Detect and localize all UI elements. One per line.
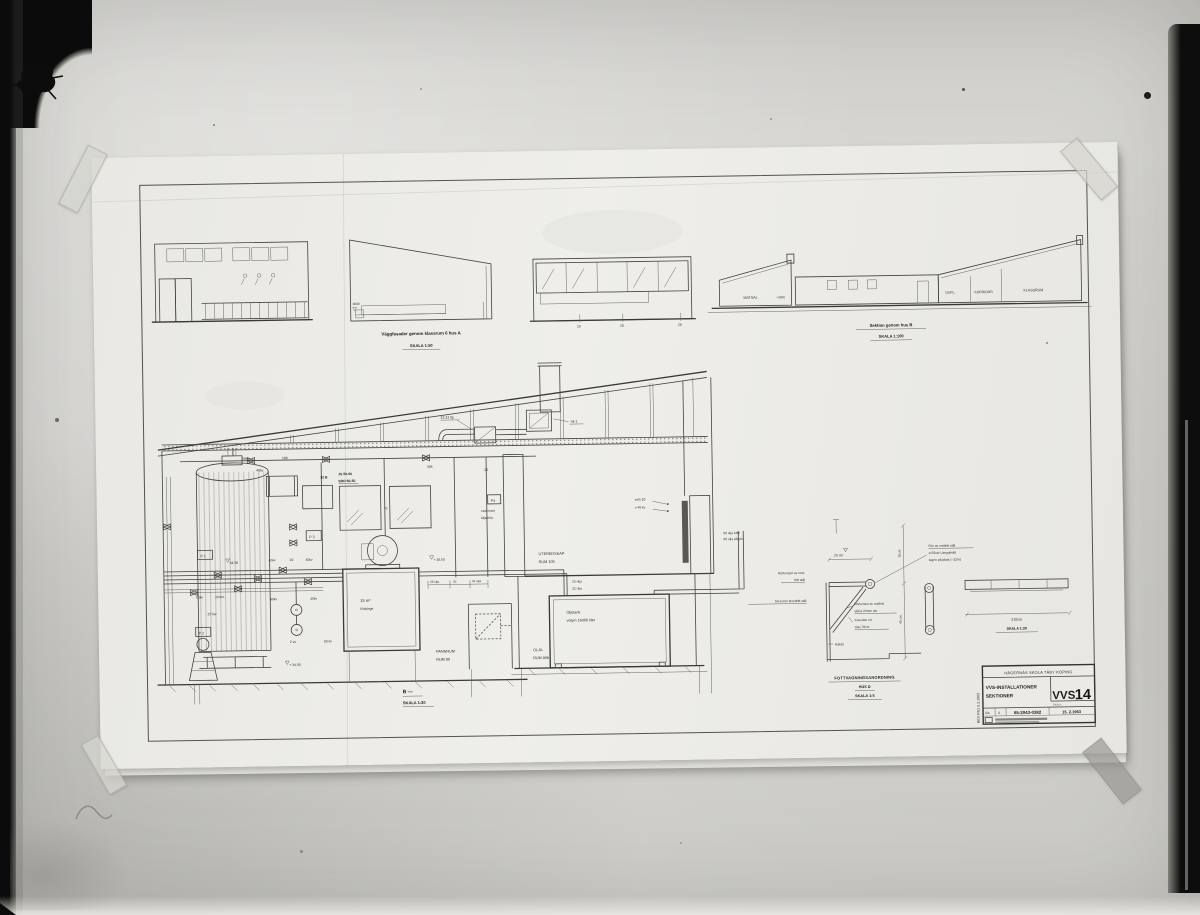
paper-creases <box>91 142 1126 769</box>
dim-100: 100 <box>282 456 288 460</box>
dust-speck <box>213 124 215 126</box>
note-cc-2: max 70cm <box>855 625 870 629</box>
elevation-facade-windows: 15 20 20 <box>529 257 696 330</box>
room-klassrum: KLASSRUM <box>1023 288 1043 292</box>
bin-label-2: Kisbinge <box>360 607 373 611</box>
facade-caption-title: Väggfasader genom klassrum 6 hus A <box>381 330 461 336</box>
subject-line-1: VVS-INSTALLATIONER <box>986 684 1038 690</box>
main-section: 33.33 ltp Sk-1 P 1 34,50 <box>153 360 746 711</box>
dim-60kv: 60kv <box>242 457 250 461</box>
pump-p1-label: P 1 <box>201 554 206 558</box>
olja-room-label-2: RUM 86b <box>533 656 549 660</box>
dust-speck <box>962 88 965 91</box>
detail-caption-sub: HUS D <box>859 685 871 689</box>
sheet-number: 14 <box>1075 687 1091 703</box>
dimrow-32-olja: 32 olja <box>472 579 481 583</box>
sheet-code: VVS <box>1052 690 1076 702</box>
project-name: HÄGERNÄS SKOLA TÄBY KÖPING <box>1004 669 1072 675</box>
title-block: HÄGERNÄS SKOLA TÄBY KÖPING VVS-INSTALLAT… <box>976 664 1095 724</box>
room-level: +3600 <box>777 295 786 299</box>
heat-exchanger-coil <box>266 475 333 509</box>
drawing-sheet-svg: 3600 15 20 20 Väggfasader genom klassrum… <box>91 142 1126 769</box>
film-edge-sliver <box>1185 420 1188 890</box>
section-b-caption: Sektion genom hus B <box>870 322 913 328</box>
bin-label-1: 15 m³ <box>360 598 371 603</box>
uteredskap-label-2: RUM 105 <box>539 560 555 564</box>
note-pipe-3: tagen på plats (~32m) <box>929 557 961 562</box>
drawing-number: 65-2043-0382 <box>1014 710 1042 715</box>
dust-speck <box>680 842 682 844</box>
p3-label: P 3 <box>309 535 314 539</box>
note-cc-1: Konsoler c/c <box>855 618 873 622</box>
drawing-sheet: 3600 15 20 20 Väggfasader genom klassrum… <box>91 142 1126 769</box>
main-caption-scale: SKALA 1:20 <box>403 700 427 705</box>
valve-40kv: 40kv <box>269 558 276 562</box>
facade-caption: Väggfasader genom klassrum 6 hus A SKALA… <box>381 330 461 350</box>
valve-40kv-2: 40kv <box>306 558 313 562</box>
dust-speck <box>1046 342 1048 344</box>
level-3650: + 36,50 <box>434 558 445 562</box>
rooftop-ducts: 33.33 ltp Sk-1 <box>438 362 584 443</box>
detail-caption-title: FOTTVAGNINGSANORDNING <box>834 675 894 681</box>
aggregate-js: JS 50-50 <box>338 472 352 476</box>
pencil-squiggle <box>72 795 116 835</box>
facade-caption-scale: SKALA 1:50 <box>410 343 434 348</box>
pipe-32-olja: 32 olja <box>572 586 582 590</box>
detail-caption: FOTTVAGNINGSANORDNING HUS D SKALA 1:5 <box>828 674 900 700</box>
fan-label: Sk-1 <box>570 419 577 423</box>
duct-label: 33.33 ltp <box>440 415 454 419</box>
main-caption: B — SKALA 1:20 <box>403 689 434 707</box>
room-dupl: DUPL. <box>945 291 955 295</box>
note-pipe-2: ø 50utv Längdmått <box>929 551 957 555</box>
note-bracket-2: stål ø 22mm utv <box>854 609 877 613</box>
uteredskap-room: UTEREDSKAP RUM 105 + 36,50 P4 motorvent … <box>429 492 670 566</box>
wedge-level-label: 3600 <box>353 302 360 306</box>
elevation-facade-hus-a <box>151 242 313 323</box>
pin-dot <box>1144 92 1151 99</box>
motorvent-label-2: Oljeförbr. <box>481 516 494 520</box>
pannrum-label-2: RUM 86 <box>436 658 450 662</box>
rail-dim-210cm: 210cm <box>1011 618 1022 622</box>
dim-70: 70 <box>384 506 388 510</box>
dim-40kv: 40kv <box>256 468 264 472</box>
pipe-olja-pafyln: 50 olja påfyln <box>723 537 743 541</box>
p4-label: P4 <box>491 499 495 503</box>
drawing-date: 15. 2.1963 <box>1062 709 1082 714</box>
note-pipe-1: Rör av rostfritt stål <box>928 544 955 548</box>
olja-room-label-1: OLJA <box>533 648 543 652</box>
elevation-facade-wedge: 3600 <box>350 238 492 321</box>
note-steel: 50-5 mm Rostfritt stål <box>775 599 807 603</box>
dust-speck <box>420 88 422 90</box>
skala-cell-label: SKALA <box>1053 702 1062 706</box>
dust-speck <box>770 118 772 120</box>
section-b-scale: SKALA 1:100 <box>879 333 905 338</box>
section-hus-b: MATSAL +3600 DUPL. KORRIDOR KLASSRUM Sek… <box>707 235 1093 343</box>
revision-note: REV PN1 5.3.1963 <box>976 693 980 723</box>
dimrow-32: 32 <box>453 579 457 583</box>
dust-speck <box>55 418 59 422</box>
motorvent-label-1: motorvent <box>481 509 495 513</box>
photographed-drawing: 3600 15 20 20 Väggfasader genom klassrum… <box>0 0 1200 915</box>
uteredskap-label-1: UTEREDSKAP <box>539 552 565 556</box>
pannrum: PANNRUM RUM 86 <box>435 604 512 670</box>
band-dim-1: 15 <box>577 324 581 328</box>
boiler-tank: P 1 34,50 <box>196 447 271 668</box>
level-3450-mid: 34,50 <box>230 561 239 565</box>
v40kv-label: v 40 kv <box>635 505 646 509</box>
vstn-label: vstn 20 <box>635 497 646 501</box>
dim-50k: 50k <box>427 465 433 469</box>
row-20mm: 20mm <box>215 595 224 599</box>
valve-20: 20 <box>290 558 294 562</box>
dim-2vv: 2 vv <box>290 640 297 644</box>
film-edge-right <box>1168 24 1200 893</box>
band-dim-2: 20 <box>620 324 624 328</box>
detail-dim-25cm: 25 cm <box>834 553 843 557</box>
room-matsal: MATSAL <box>744 296 758 300</box>
detail-dim-30cm: 30cm <box>898 549 902 557</box>
detail-dim-40cm: 40 cm <box>899 615 903 624</box>
ink-blot <box>8 52 66 110</box>
note-bracket-1: Rörkonsol av rostfritt <box>854 602 883 606</box>
bin-15m3: 15 m³ Kisbinge <box>343 568 421 682</box>
room-korridor: KORRIDOR <box>974 290 993 294</box>
dim-25hw: 25 hw <box>207 612 217 616</box>
rail-front-view: 210cm SKALA 1:20 <box>965 579 1072 633</box>
film-edge-left <box>0 0 16 915</box>
row-60kv: 60kv <box>196 595 203 599</box>
dimrow-25-olja: 25 olja <box>430 580 439 584</box>
dim-50kv: 50 kv <box>324 639 332 643</box>
aggregate-sro: SRO 50-50 <box>338 479 355 483</box>
detail-caption-scale: SKALA 1:5 <box>855 694 875 698</box>
film-edge-left-shade <box>16 0 23 915</box>
main-caption-label: B — <box>403 689 413 695</box>
oiltank-label-2: volym 16000 liter <box>567 618 596 622</box>
pipe-25-olja: 25 olja <box>572 579 582 583</box>
note-kakel: Kakel <box>835 642 844 646</box>
pump-p2-label: P 2 <box>199 631 204 635</box>
oiltank-label-1: Oljetank <box>566 610 580 614</box>
band-dim-3: 20 <box>678 323 682 327</box>
pipe-olja-luftn: 50 olja luftn <box>723 531 740 535</box>
pannrum-label-1: PANNRUM <box>436 649 455 653</box>
dust-speck <box>300 850 303 853</box>
level-3450-plus: + 34,50 <box>289 663 301 667</box>
subject-line-2: SEKTIONER <box>986 693 1014 698</box>
note-konsol-2: fritt stål <box>794 578 805 582</box>
rail-scale: SKALA 1:20 <box>1007 626 1027 630</box>
photo-bottom-band <box>0 896 1200 915</box>
note-konsol-1: Rörkonsol av rost- <box>778 571 805 575</box>
dim-32b: 32 B <box>320 475 328 479</box>
row-60kv-2: 60kv <box>270 597 277 601</box>
row-40kv: 40kv <box>310 597 317 601</box>
dim-20: 20 <box>484 468 488 472</box>
pump-unit <box>361 535 400 569</box>
